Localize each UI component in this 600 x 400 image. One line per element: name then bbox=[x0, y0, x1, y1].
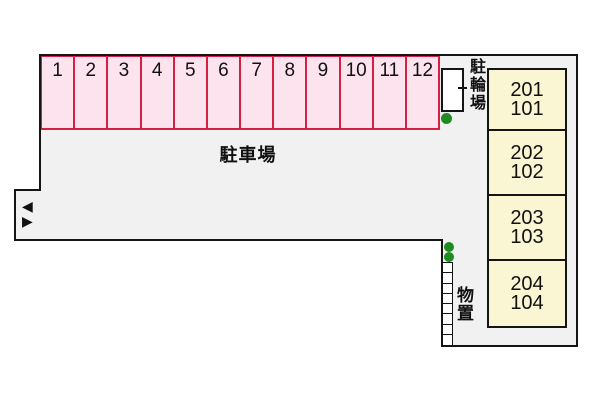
unit-number-upper: 203 bbox=[510, 209, 543, 228]
arrow-right-icon: ▶ bbox=[22, 215, 33, 229]
building-unit: 204 104 bbox=[489, 261, 565, 326]
stall-number: 4 bbox=[152, 60, 163, 81]
stall-number: 10 bbox=[346, 60, 367, 81]
unit-number-lower: 102 bbox=[510, 163, 543, 182]
parking-stall: 7 bbox=[241, 57, 274, 128]
parking-stall: 9 bbox=[307, 57, 340, 128]
parking-stall: 3 bbox=[108, 57, 141, 128]
stall-number: 2 bbox=[85, 60, 96, 81]
parking-stall: 2 bbox=[75, 57, 108, 128]
stall-number: 7 bbox=[251, 60, 262, 81]
stall-number: 9 bbox=[318, 60, 329, 81]
tree-marker bbox=[444, 252, 454, 262]
bicycle-parking-label: 駐輪場 bbox=[463, 58, 487, 112]
stall-number: 5 bbox=[185, 60, 196, 81]
tree-marker bbox=[441, 113, 452, 124]
site-plan: 1 2 3 4 5 6 7 8 9 10 11 12 駐車場 駐輪場 201 1… bbox=[0, 0, 600, 400]
storage-shed-cell bbox=[442, 263, 452, 273]
storage-shed-cell bbox=[442, 325, 452, 335]
unit-number-upper: 204 bbox=[510, 275, 543, 294]
building-units-column: 201 101 202 102 203 103 204 104 bbox=[487, 68, 567, 328]
unit-number-lower: 101 bbox=[510, 100, 543, 119]
bicycle-parking-structure bbox=[441, 68, 464, 112]
parking-stall: 8 bbox=[274, 57, 307, 128]
parking-lot-label: 駐車場 bbox=[202, 141, 294, 167]
building-unit: 203 103 bbox=[489, 196, 565, 261]
parking-stall: 6 bbox=[208, 57, 241, 128]
building-unit: 202 102 bbox=[489, 131, 565, 196]
stall-number: 8 bbox=[285, 60, 296, 81]
arrow-left-icon: ◀ bbox=[22, 200, 33, 214]
storage-shed-cell bbox=[442, 335, 452, 345]
unit-number-upper: 202 bbox=[510, 144, 543, 163]
parking-stall: 5 bbox=[175, 57, 208, 128]
parking-stall: 12 bbox=[407, 57, 438, 128]
stall-number: 1 bbox=[52, 60, 63, 81]
unit-number-lower: 103 bbox=[510, 228, 543, 247]
stall-number: 6 bbox=[218, 60, 229, 81]
parking-stall: 11 bbox=[374, 57, 407, 128]
building-unit: 201 101 bbox=[489, 70, 565, 131]
stall-number: 11 bbox=[379, 60, 399, 81]
storage-shed-cell bbox=[442, 273, 452, 283]
parking-stall: 4 bbox=[142, 57, 175, 128]
unit-number-lower: 104 bbox=[510, 294, 543, 313]
stall-number: 12 bbox=[412, 60, 433, 81]
storage-label: 物置 bbox=[451, 286, 476, 322]
parking-stall: 1 bbox=[42, 57, 75, 128]
unit-number-upper: 201 bbox=[510, 81, 543, 100]
parking-stall-row: 1 2 3 4 5 6 7 8 9 10 11 12 bbox=[40, 55, 440, 130]
tree-marker bbox=[444, 242, 454, 252]
parking-stall: 10 bbox=[341, 57, 374, 128]
stall-number: 3 bbox=[119, 60, 130, 81]
